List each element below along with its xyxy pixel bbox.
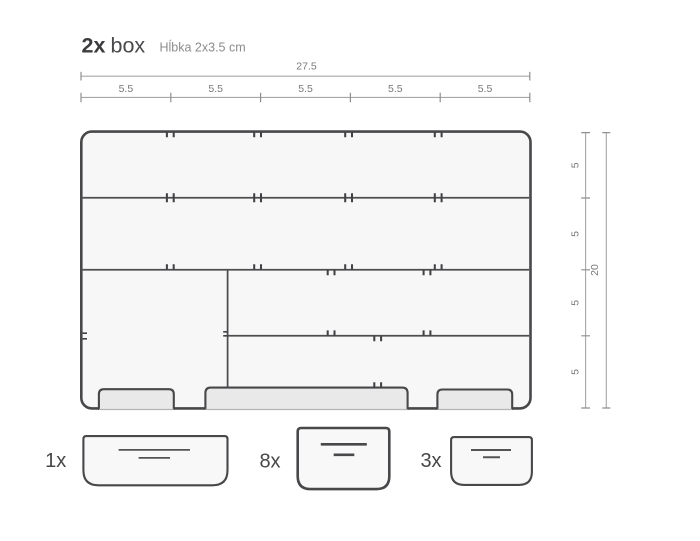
svg-text:5.5: 5.5 xyxy=(298,83,313,95)
svg-text:20: 20 xyxy=(589,264,601,276)
svg-text:5: 5 xyxy=(569,162,581,168)
svg-text:5.5: 5.5 xyxy=(388,83,403,95)
svg-text:1x: 1x xyxy=(45,450,66,472)
svg-text:5.5: 5.5 xyxy=(119,83,134,95)
svg-text:box: box xyxy=(111,34,146,58)
svg-text:5: 5 xyxy=(569,300,581,306)
svg-text:8x: 8x xyxy=(259,451,280,473)
svg-text:27.5: 27.5 xyxy=(296,61,317,73)
svg-text:5.5: 5.5 xyxy=(478,83,493,95)
svg-text:2x: 2x xyxy=(82,34,106,58)
svg-text:5: 5 xyxy=(569,231,581,237)
svg-text:Hĺbka 2x3.5 cm: Hĺbka 2x3.5 cm xyxy=(160,40,246,55)
svg-text:5: 5 xyxy=(569,369,581,375)
svg-text:3x: 3x xyxy=(420,450,441,472)
svg-text:5.5: 5.5 xyxy=(208,83,223,95)
